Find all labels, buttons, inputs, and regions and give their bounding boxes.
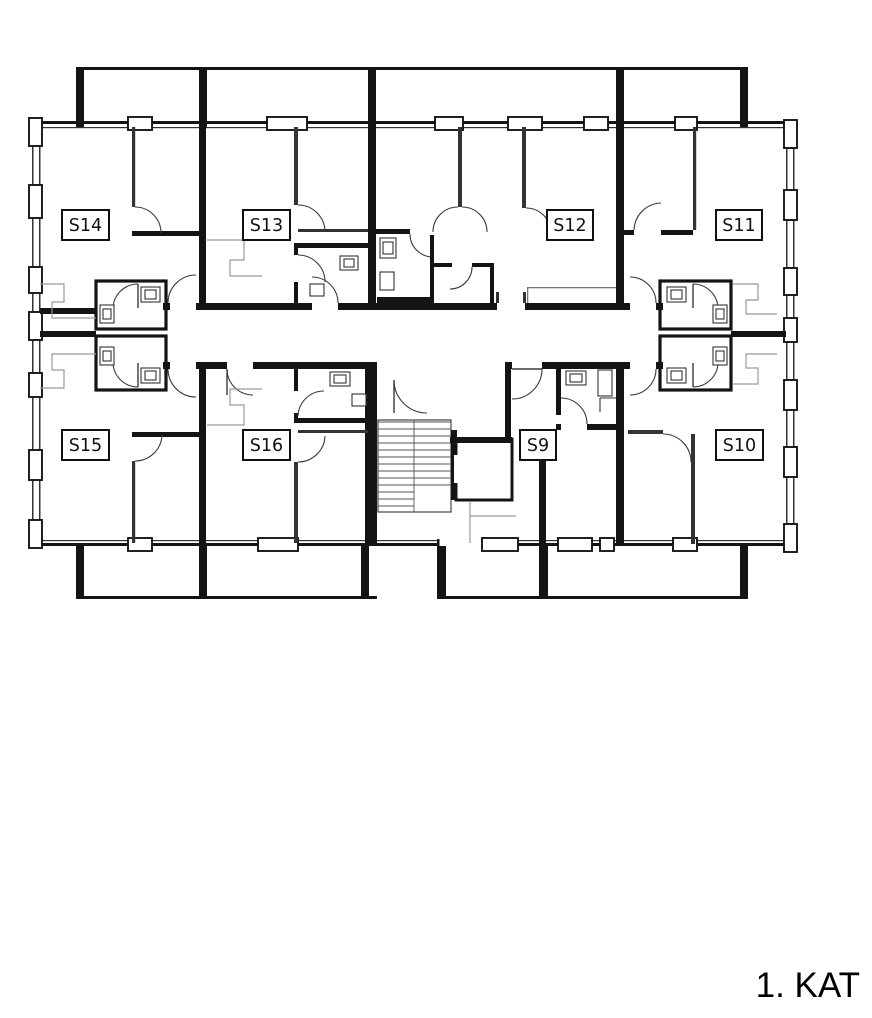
room-label-s15: S15 bbox=[62, 430, 109, 460]
room-label-s11: S11 bbox=[716, 210, 762, 240]
room-label-text: S11 bbox=[722, 216, 755, 236]
room-label-text: S13 bbox=[250, 216, 283, 236]
elevator-shaft bbox=[450, 437, 516, 543]
room-label-s12: S12 bbox=[547, 210, 593, 240]
floor-plan-drawing: S14 S13 S12 S11 S15 S16 S9 S10 1. KAT bbox=[0, 0, 872, 1018]
room-label-s13: S13 bbox=[243, 210, 290, 240]
balcony-top bbox=[76, 67, 748, 127]
room-label-s14: S14 bbox=[62, 210, 109, 240]
entry-porch bbox=[437, 546, 548, 599]
room-label-s16: S16 bbox=[243, 430, 290, 460]
balcony-bottom bbox=[76, 546, 748, 599]
staircase bbox=[378, 380, 457, 512]
room-label-s9: S9 bbox=[520, 430, 556, 460]
floor-plan-page: S14 S13 S12 S11 S15 S16 S9 S10 1. KAT bbox=[0, 0, 872, 1018]
room-label-text: S12 bbox=[553, 216, 586, 236]
room-label-text: S16 bbox=[250, 436, 283, 456]
room-label-text: S14 bbox=[69, 216, 102, 236]
floor-label: 1. KAT bbox=[756, 966, 860, 1005]
room-label-text: S10 bbox=[723, 436, 756, 456]
room-label-text: S15 bbox=[69, 436, 102, 456]
unit-party-walls bbox=[199, 124, 624, 546]
room-label-s10: S10 bbox=[716, 430, 763, 460]
room-label-text: S9 bbox=[527, 436, 549, 456]
